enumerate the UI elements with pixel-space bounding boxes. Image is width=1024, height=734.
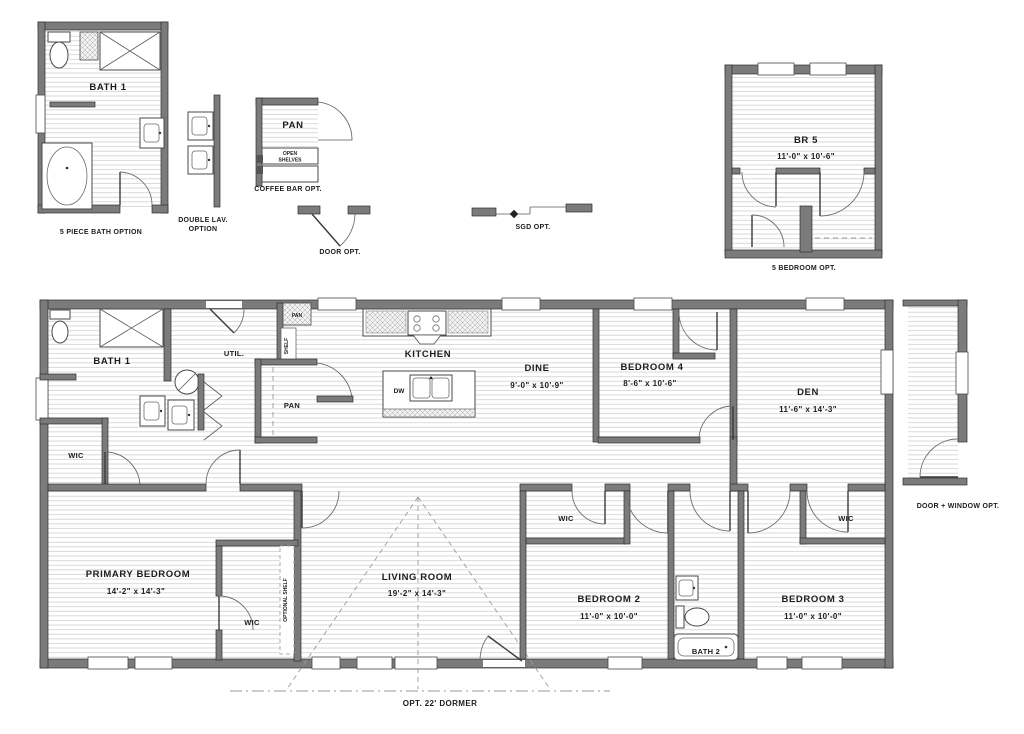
bath1-label: BATH 1 <box>93 356 130 367</box>
den-label: DEN <box>797 387 819 398</box>
window <box>806 298 844 310</box>
sink-icon <box>140 118 164 148</box>
sink-icon <box>188 112 213 140</box>
dw-label: DW <box>394 388 406 395</box>
option-coffee-bar: OPEN SHELVES PAN COFFEE BAR OPT. <box>254 98 352 193</box>
option-five-piece-bath: BATH 1 5 PIECE BATH OPTION <box>36 22 168 236</box>
bedroom2-label: BEDROOM 2 <box>578 594 641 605</box>
wic-bedroom3-label: WIC <box>838 514 854 523</box>
window <box>135 657 172 669</box>
shower-icon <box>100 32 160 70</box>
wic-bedroom2-label: WIC <box>558 514 574 523</box>
window <box>312 657 340 669</box>
window <box>634 298 672 310</box>
cabinet-icon <box>80 32 98 60</box>
toilet-icon <box>50 310 70 343</box>
bedroom3-label: BEDROOM 3 <box>782 594 845 605</box>
window <box>357 657 392 669</box>
door-option-caption: DOOR OPT. <box>319 249 360 256</box>
option-five-bedroom: BR 5 11'-0" x 10'-6" 5 BEDROOM OPT. <box>725 63 882 272</box>
window <box>608 657 642 669</box>
bath-option-caption: 5 PIECE BATH OPTION <box>60 229 142 236</box>
washer-dryer-icon <box>175 370 199 394</box>
double-lav-caption-2: OPTION <box>189 226 218 233</box>
optional-shelf-label: OPTIONAL SHELF <box>283 578 289 622</box>
util-label: UTIL. <box>224 349 244 358</box>
bedroom4-dims: 8'-6" x 10'-6" <box>623 379 676 388</box>
open-shelves-label-1: OPEN <box>283 151 298 157</box>
pantry-label: PAN <box>284 401 300 410</box>
floor-plan-page: BATH 1 5 PIECE BATH OPTION DOUBLE LAV. O… <box>0 0 1024 729</box>
tub-icon <box>42 143 92 209</box>
coffee-bar-room-label: PAN <box>282 120 303 131</box>
window <box>395 657 437 669</box>
den-dims: 11'-6" x 14'-3" <box>779 405 837 414</box>
fixture <box>256 155 263 163</box>
toilet-icon <box>48 32 70 68</box>
living-room-label: LIVING ROOM <box>382 572 452 583</box>
primary-bedroom-dims: 14'-2" x 14'-3" <box>107 587 165 596</box>
sink-icon <box>140 396 165 426</box>
living-room-dims: 19'-2" x 14'-3" <box>388 589 446 598</box>
double-lav-caption-1: DOUBLE LAV. <box>178 217 228 224</box>
sink-icon <box>676 576 698 600</box>
primary-bedroom-label: PRIMARY BEDROOM <box>86 569 191 580</box>
br5-room-label: BR 5 <box>794 135 818 146</box>
sink-icon <box>188 146 213 174</box>
window <box>36 95 45 133</box>
wic-hall-label: WIC <box>68 451 84 460</box>
window <box>36 378 48 420</box>
window <box>318 298 356 310</box>
option-door-window: DOOR + WINDOW OPT. <box>903 300 999 510</box>
kitchen-island: DW <box>383 371 475 417</box>
five-bedroom-caption: 5 BEDROOM OPT. <box>772 265 836 272</box>
pan-closet-label: PAN <box>292 313 303 319</box>
open-shelves-label-2: SHELVES <box>279 158 303 164</box>
bath-option-room-label: BATH 1 <box>89 82 126 93</box>
window <box>810 63 846 75</box>
wic-primary-label: WIC <box>244 618 260 627</box>
door-window-caption: DOOR + WINDOW OPT. <box>917 503 1000 510</box>
sgd-option-caption: SGD OPT. <box>515 224 550 231</box>
option-double-lav: DOUBLE LAV. OPTION <box>178 95 228 233</box>
window <box>956 352 968 394</box>
bath2-label: BATH 2 <box>692 647 720 656</box>
cabinet-icon <box>262 166 318 182</box>
shelf-label: SHELF <box>284 338 290 354</box>
option-sgd: SGD OPT. <box>472 204 592 231</box>
dine-label: DINE <box>524 363 549 374</box>
window <box>757 657 787 669</box>
coffee-bar-caption: COFFEE BAR OPT. <box>254 186 322 193</box>
toilet-icon <box>676 606 709 628</box>
option-door: DOOR OPT. <box>298 206 370 256</box>
main-floor-plan: DW <box>36 298 893 691</box>
dormer-caption: OPT. 22' DORMER <box>403 699 478 708</box>
floor-plan-svg: BATH 1 5 PIECE BATH OPTION DOUBLE LAV. O… <box>0 0 1024 729</box>
bedroom3-dims: 11'-0" x 10'-0" <box>784 612 842 621</box>
window <box>502 298 540 310</box>
fixture <box>256 166 263 174</box>
window <box>802 657 842 669</box>
window <box>88 657 128 669</box>
bedroom4-label: BEDROOM 4 <box>621 362 684 373</box>
bedroom2-dims: 11'-0" x 10'-0" <box>580 612 638 621</box>
window <box>881 350 893 394</box>
kitchen-label: KITCHEN <box>405 349 451 360</box>
shower-icon <box>100 309 163 347</box>
sgd-marker <box>510 210 518 218</box>
sink-icon <box>168 400 194 430</box>
dine-dims: 9'-0" x 10'-9" <box>510 381 563 390</box>
br5-room-dims: 11'-0" x 10'-6" <box>777 152 835 161</box>
window <box>758 63 794 75</box>
